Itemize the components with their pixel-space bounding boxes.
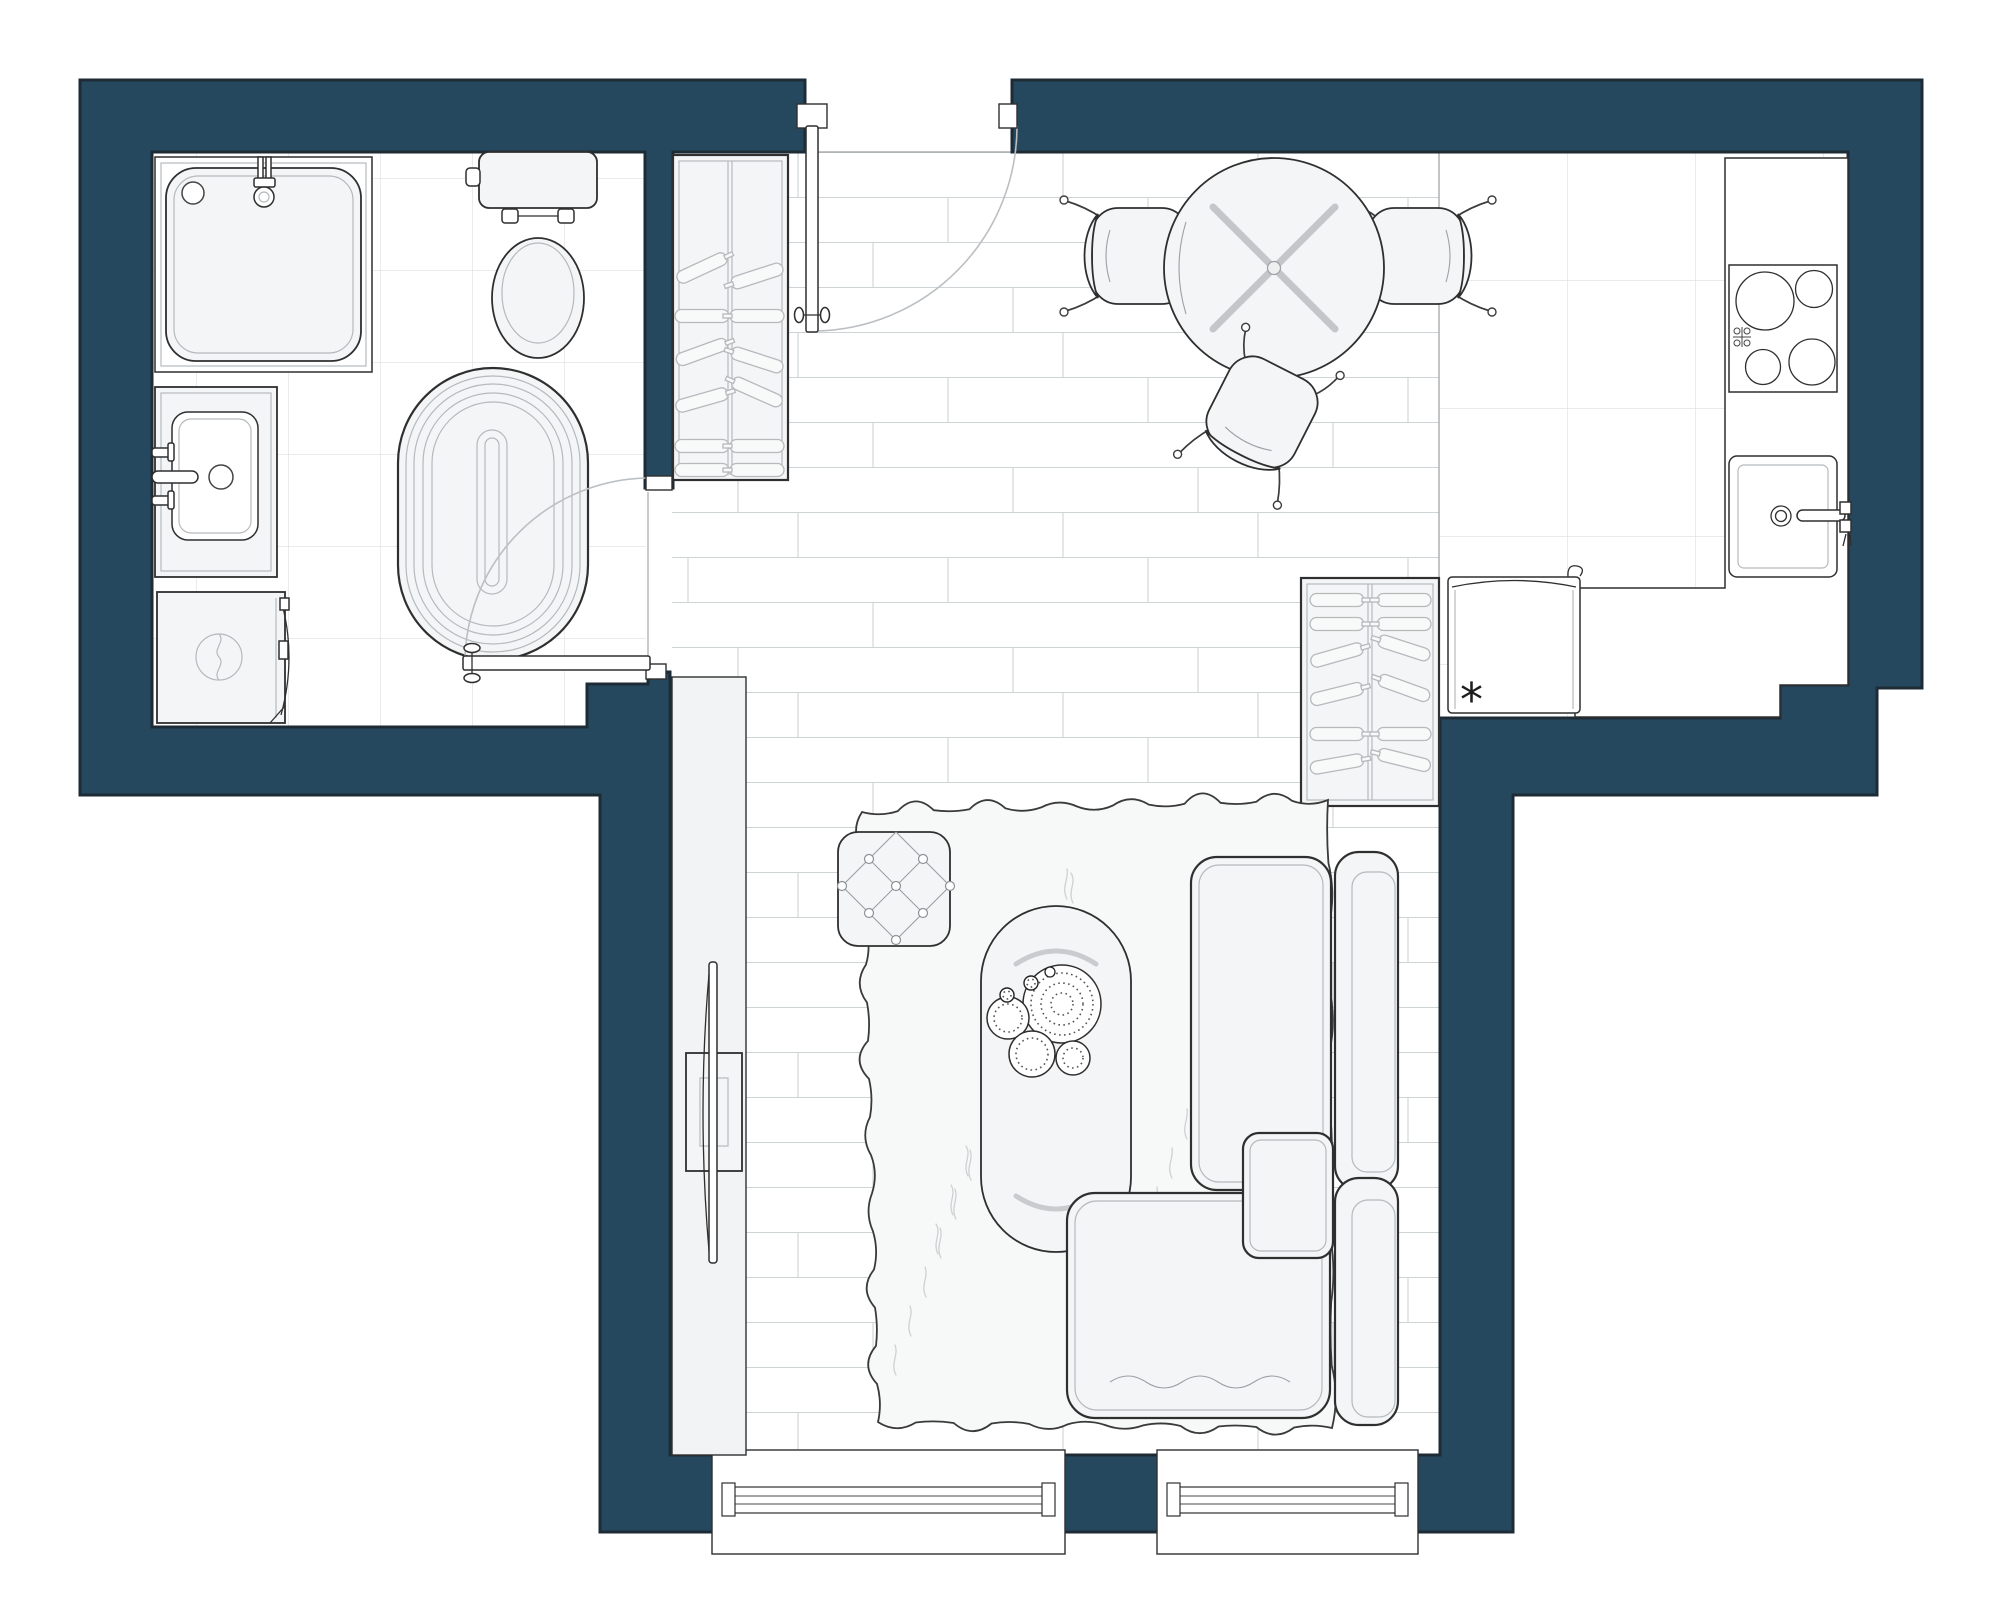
window-frame-cap xyxy=(1167,1483,1180,1516)
sofa-side-table xyxy=(1243,1133,1333,1258)
window-left xyxy=(712,1450,1065,1554)
kitchen-wardrobe xyxy=(1301,578,1439,806)
door-jamb xyxy=(797,104,827,128)
door-leaf xyxy=(463,656,650,670)
floor-plan-page: * xyxy=(0,0,2004,1606)
window-frame-cap xyxy=(1042,1483,1055,1516)
shower-drain-icon xyxy=(182,182,204,204)
window-frame-cap xyxy=(722,1483,735,1516)
door-jamb xyxy=(646,476,672,490)
floor-plan-drawing: * xyxy=(0,0,2004,1606)
sink-drain-icon xyxy=(209,465,233,489)
dining-table xyxy=(1164,158,1384,378)
pouf xyxy=(838,832,955,946)
sofa-back-cushion xyxy=(1335,1178,1398,1425)
cooktop xyxy=(1729,265,1837,392)
bathroom-sink xyxy=(152,387,277,577)
hall-wardrobe xyxy=(673,155,788,480)
sofa-back-cushion xyxy=(1335,852,1398,1190)
washing-machine xyxy=(157,592,289,723)
tv-wall-panel xyxy=(672,677,746,1455)
bathtub xyxy=(398,368,588,660)
bathroom-door-threshold xyxy=(646,490,672,670)
door-leaf xyxy=(806,126,818,332)
door-jamb xyxy=(999,104,1017,128)
window-right xyxy=(1157,1450,1418,1554)
fridge: * xyxy=(1448,566,1582,727)
shower xyxy=(155,157,372,372)
kitchen-sink xyxy=(1729,456,1851,577)
window-frame-cap xyxy=(1395,1483,1408,1516)
freezer-symbol: * xyxy=(1460,673,1483,727)
